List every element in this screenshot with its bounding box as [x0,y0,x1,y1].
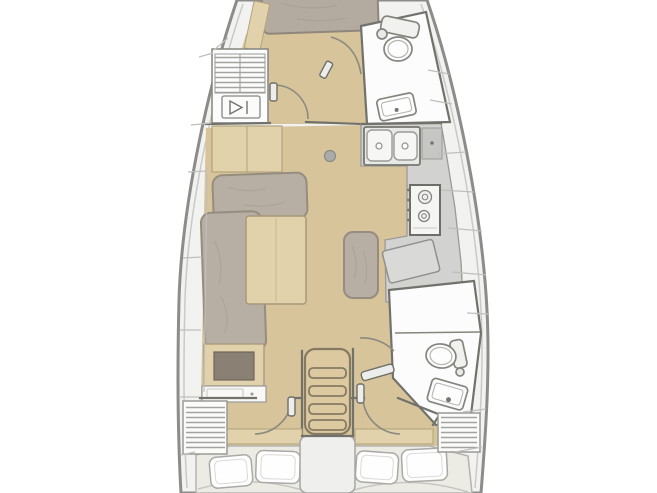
boat-floor-plan [0,0,657,493]
toilet-pump [377,29,387,39]
gimbal-pin [407,199,410,202]
shelf-locker-hatched [441,416,477,449]
step [309,420,346,430]
stove [407,185,440,235]
starboard-aft-locker [438,413,480,452]
cabinet-body [202,386,266,402]
starboard-cabin-door-leaf [357,384,364,403]
port-cabin-door-leaf [288,397,295,416]
cabinet-knob [251,393,254,396]
burner [419,191,432,204]
floor-plan-canvas [0,0,657,493]
headboard [222,429,302,444]
companionway [302,349,353,436]
bench-cushion [344,232,378,298]
cabinet-knob [430,141,434,145]
gimbal-pin [407,209,410,212]
forward-cabin-door-leaf [270,83,277,101]
sink-drain [376,143,382,149]
salon-bench [344,232,378,298]
mast-post [325,151,336,162]
toilet-pump [456,368,464,376]
step [309,368,346,378]
shelf-locker-hatched [186,404,225,451]
port-aft-locker [183,401,227,454]
gimbal-pin [407,219,410,222]
salon-table [246,216,306,304]
engine-hatch [300,436,355,493]
galley-front-wall [362,123,441,124]
salon-low-cabinet [202,386,266,402]
aft-salon-seat [204,344,264,386]
companionway-steps [305,349,350,434]
shower-divider [395,332,480,333]
galley-double-sink [364,127,420,165]
gimbal-pin [407,189,410,192]
sink-drain [402,143,408,149]
forward-locker-column [212,49,268,123]
step [309,404,346,414]
seat-inset [214,352,254,380]
burner [419,211,430,222]
forward-bulkhead-wall [206,123,270,124]
deck-seam-line [199,53,213,57]
headboard [355,429,433,444]
step [309,386,346,396]
salon-sideboard [212,126,282,172]
